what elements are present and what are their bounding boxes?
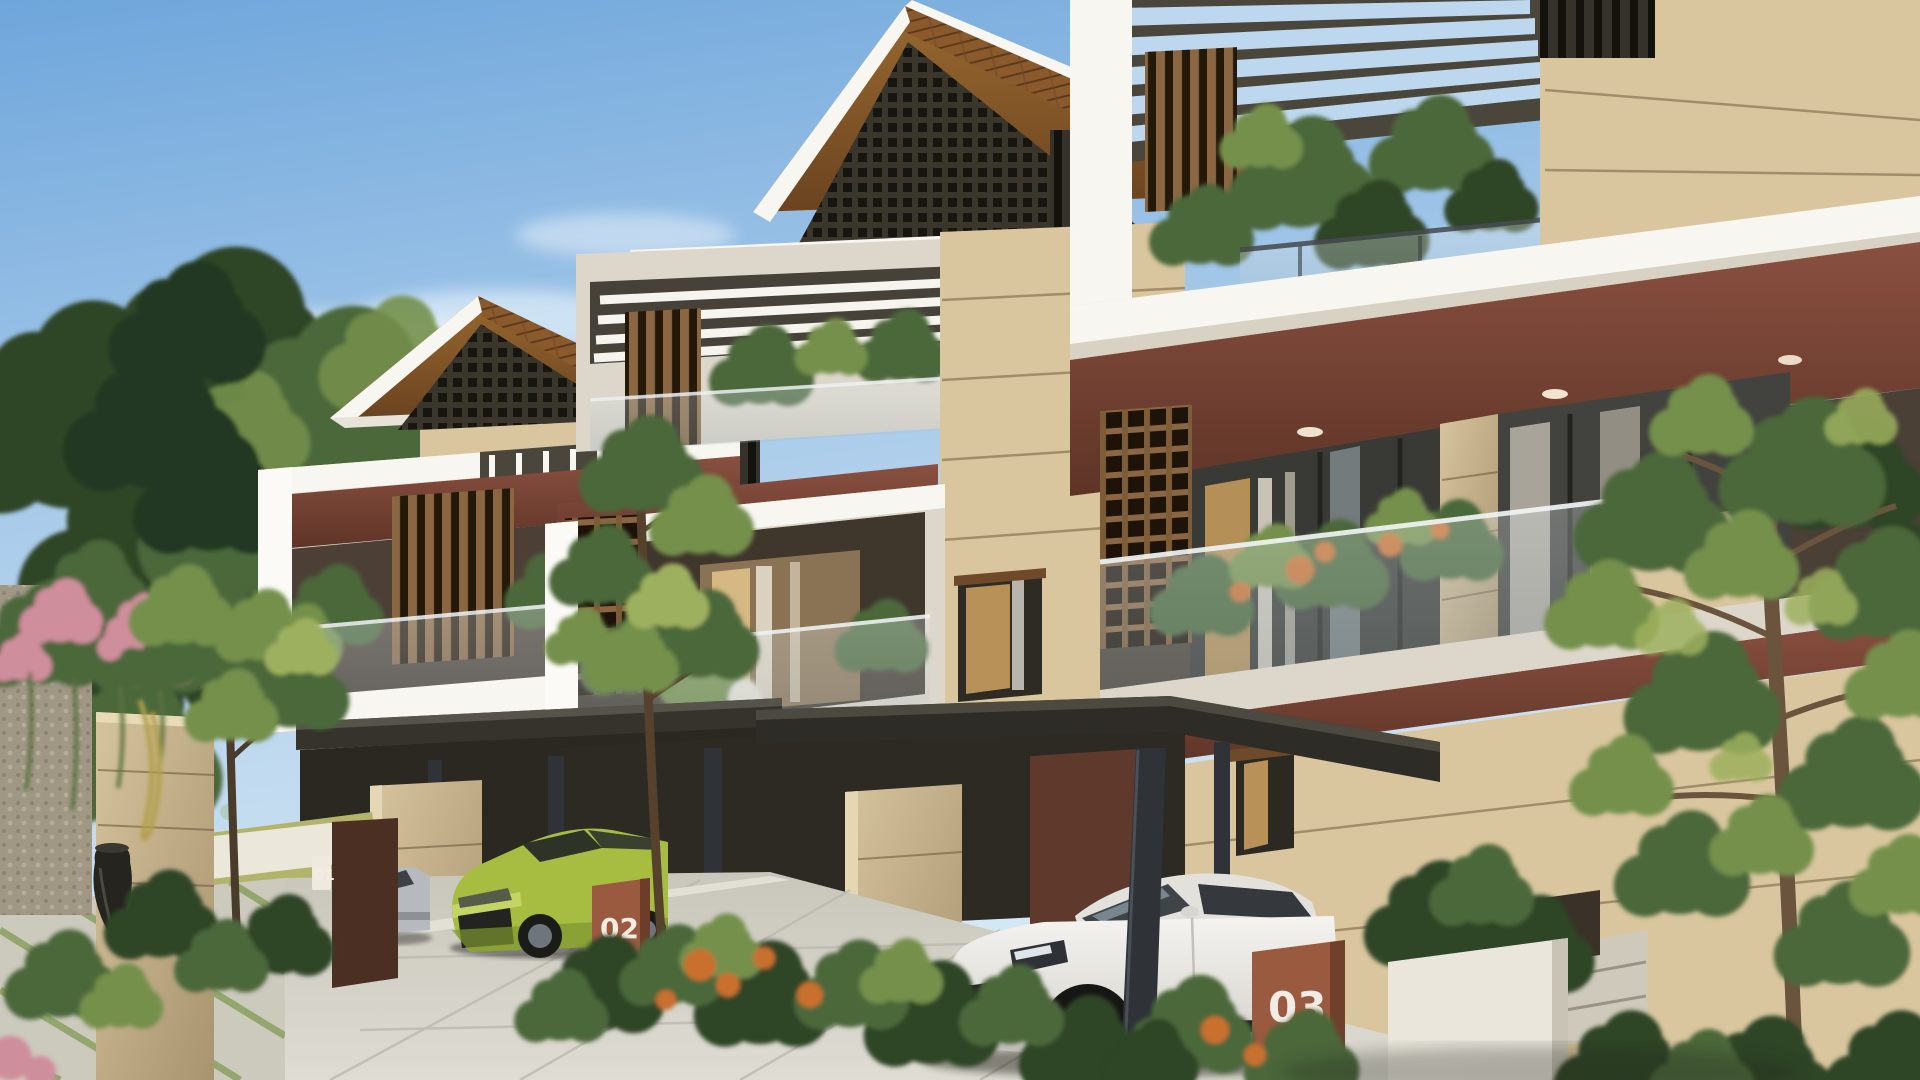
unit03-left-frame [1070, 0, 1132, 306]
unit02-window [954, 568, 1046, 702]
unit03-lower-window [1230, 742, 1300, 856]
villa-row-scene: 01 02 03 [0, 0, 1920, 1080]
unit01-marker-label: 01 [314, 866, 335, 884]
architectural-render: 01 02 03 [0, 0, 1920, 1080]
unit03-wood-slat-screen [1145, 47, 1237, 212]
unit03-top-slat-block [1540, 0, 1655, 58]
